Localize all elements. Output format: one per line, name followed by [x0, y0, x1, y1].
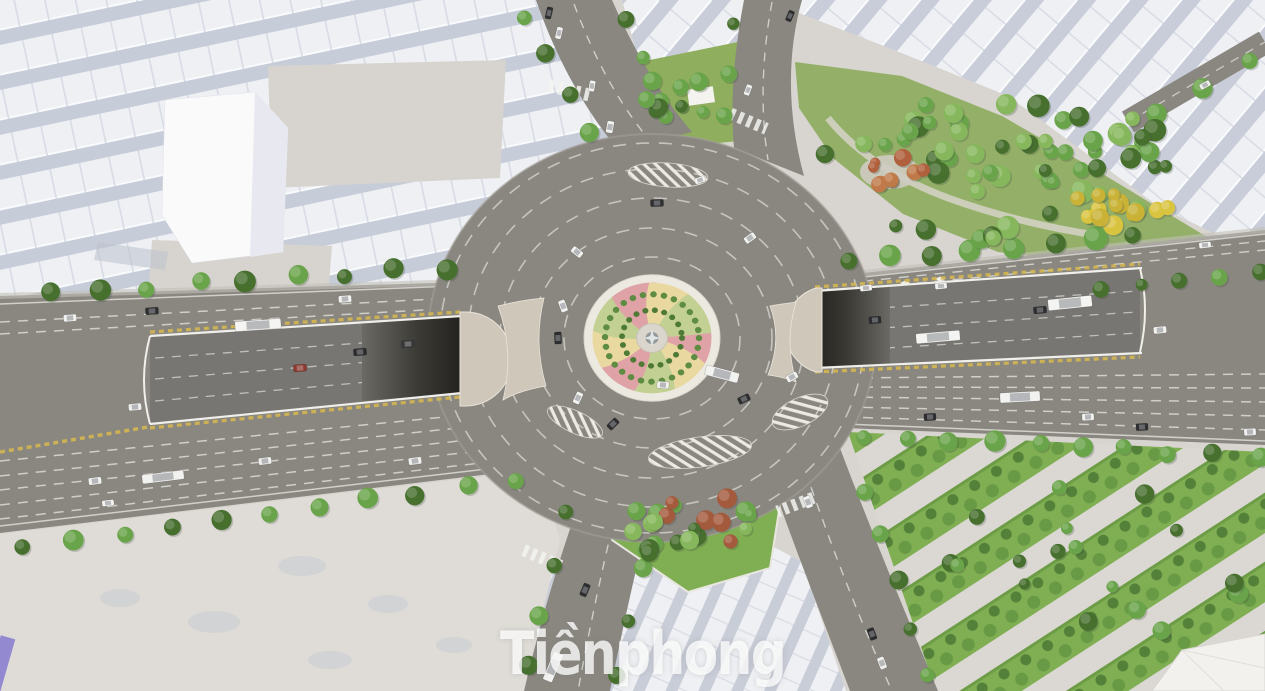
vehicle	[869, 316, 882, 324]
vehicle	[145, 307, 158, 315]
vehicle	[1153, 326, 1167, 334]
vehicle	[650, 199, 663, 206]
tunnel-mouth-left	[362, 316, 462, 401]
vehicle	[1244, 428, 1256, 436]
vehicle	[102, 499, 115, 506]
tunnel-mouth-right	[815, 286, 890, 368]
vehicle	[293, 364, 306, 372]
vehicle	[128, 403, 142, 411]
vehicle	[1199, 241, 1212, 248]
vehicle	[935, 282, 948, 289]
vehicle	[1136, 423, 1148, 431]
vehicle	[353, 348, 366, 356]
vehicle	[401, 340, 414, 348]
vehicle	[657, 381, 670, 389]
vehicle	[924, 413, 936, 421]
vehicle	[88, 477, 102, 486]
scene-render	[0, 0, 1265, 691]
vehicle	[338, 295, 351, 303]
vehicle	[1000, 391, 1040, 403]
aerial-render: Tiềnphong	[0, 0, 1265, 691]
vehicle	[63, 314, 76, 322]
central-island	[584, 274, 720, 401]
vehicle	[1033, 306, 1047, 314]
plaza-patch-upper	[268, 60, 506, 188]
watermark-text: Tiềnphong	[500, 624, 785, 684]
vehicle	[1082, 413, 1094, 421]
vehicle	[258, 457, 272, 466]
vehicle	[408, 457, 422, 466]
vehicle	[860, 284, 873, 291]
vehicle	[554, 332, 561, 344]
